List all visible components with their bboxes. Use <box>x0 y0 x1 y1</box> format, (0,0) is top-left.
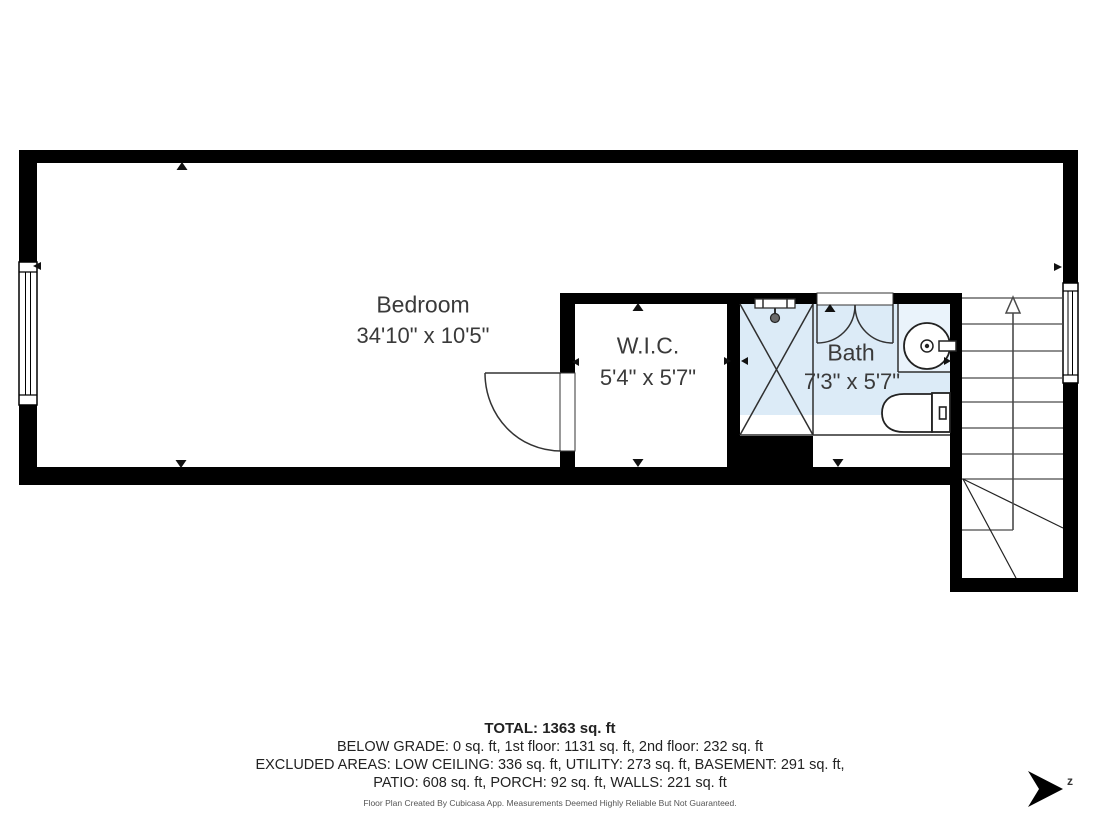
marker-up <box>633 303 644 311</box>
wall-stairs-bottom <box>950 578 1078 592</box>
floor-plan-drawing <box>0 0 1100 825</box>
room-label-bedroom: Bedroom <box>376 294 469 317</box>
window-icon <box>19 262 37 405</box>
room-label-wic: W.I.C. <box>617 335 680 358</box>
wall-bottom <box>19 467 962 485</box>
marker-down <box>176 460 187 468</box>
area-summary: TOTAL: 1363 sq. ft BELOW GRADE: 0 sq. ft… <box>0 721 1100 791</box>
floor-areas-text: BELOW GRADE: 0 sq. ft, 1st floor: 1131 s… <box>0 740 1100 756</box>
door-swing-icon <box>485 373 575 451</box>
wall-under-shower <box>727 436 813 468</box>
room-label-bath: Bath <box>827 342 874 365</box>
north-arrow-label: z <box>1067 774 1073 788</box>
marker-right <box>1054 263 1062 271</box>
toilet-icon <box>882 393 950 432</box>
floor-plan-page: Bedroom 34'10" x 10'5" W.I.C. 5'4" x 5'7… <box>0 0 1100 825</box>
total-area-text: TOTAL: 1363 sq. ft <box>0 721 1100 737</box>
stairs-up-arrow-icon <box>1006 297 1020 530</box>
wall-stairs-west <box>950 293 962 580</box>
wall-top <box>19 150 1078 163</box>
room-dims-bath: 7'3" x 5'7" <box>804 371 900 393</box>
room-dims-wic: 5'4" x 5'7" <box>600 367 696 389</box>
staircase <box>962 297 1063 578</box>
disclaimer-text: Floor Plan Created By Cubicasa App. Meas… <box>0 798 1100 808</box>
window-icon <box>1063 283 1078 383</box>
marker-down <box>833 459 844 467</box>
north-arrow-icon <box>1020 768 1090 812</box>
marker-down <box>633 459 644 467</box>
marker-up <box>177 162 188 170</box>
excluded-areas-text: EXCLUDED AREAS: LOW CEILING: 336 sq. ft,… <box>0 758 1100 774</box>
room-dims-bedroom: 34'10" x 10'5" <box>357 325 490 347</box>
excluded-areas-text-2: PATIO: 608 sq. ft, PORCH: 92 sq. ft, WAL… <box>0 776 1100 792</box>
north-arrow: z <box>1020 768 1090 812</box>
